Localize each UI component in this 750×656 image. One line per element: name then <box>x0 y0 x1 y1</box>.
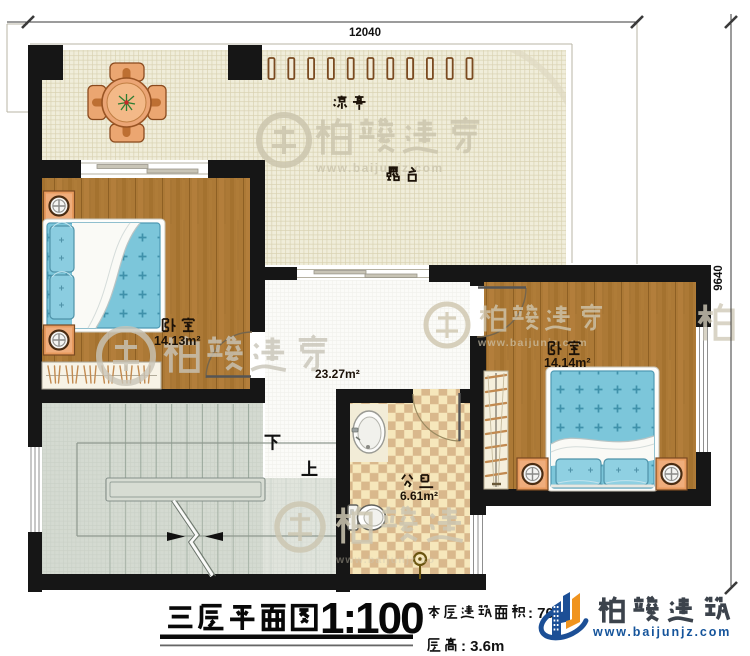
svg-text:12040: 12040 <box>349 27 381 39</box>
svg-text:www.baijunjz.com: www.baijunjz.com <box>315 161 444 175</box>
svg-text:www.baijunjz.co: www.baijunjz.co <box>335 554 435 566</box>
svg-text:14.13m²: 14.13m² <box>154 334 201 348</box>
svg-text:14.14m²: 14.14m² <box>544 356 591 370</box>
svg-text:www.baijunjz.com: www.baijunjz.com <box>592 625 731 639</box>
svg-text:9640: 9640 <box>713 265 725 291</box>
svg-text:6.61m²: 6.61m² <box>400 489 438 503</box>
svg-text:: 3.6m: : 3.6m <box>461 638 504 655</box>
svg-text:23.27m²: 23.27m² <box>315 367 360 381</box>
